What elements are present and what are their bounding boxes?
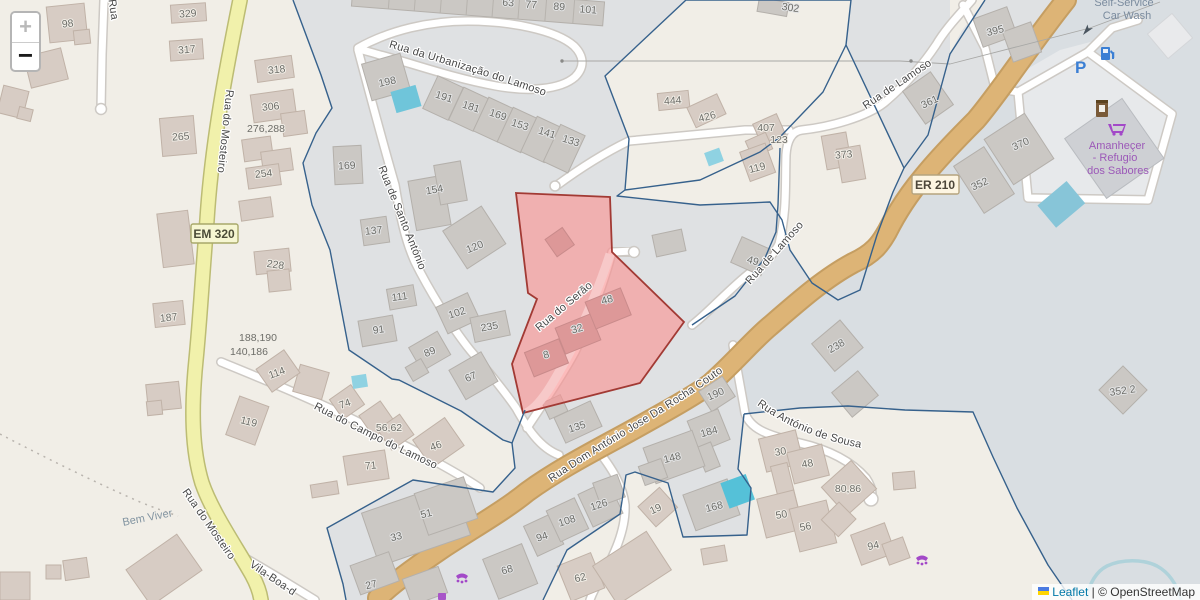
svg-text:228: 228 <box>266 258 285 272</box>
svg-text:169: 169 <box>338 160 356 173</box>
svg-text:317: 317 <box>178 43 196 56</box>
svg-text:318: 318 <box>267 63 286 77</box>
svg-text:140,186: 140,186 <box>230 346 268 358</box>
svg-text:123: 123 <box>770 134 788 146</box>
svg-text:ER 210: ER 210 <box>915 178 955 192</box>
svg-text:56,62: 56,62 <box>376 422 402 434</box>
svg-text:dos Sabores: dos Sabores <box>1087 165 1149 177</box>
svg-text:101: 101 <box>579 3 597 16</box>
svg-text:91: 91 <box>372 323 385 337</box>
svg-text:Car Wash: Car Wash <box>1103 10 1152 22</box>
svg-text:30: 30 <box>774 445 788 459</box>
svg-text:444: 444 <box>664 94 682 107</box>
svg-text:302: 302 <box>781 1 800 15</box>
svg-text:407: 407 <box>757 122 775 134</box>
svg-text:89: 89 <box>553 1 566 14</box>
svg-text:111: 111 <box>391 290 409 304</box>
svg-text:137: 137 <box>364 224 383 238</box>
svg-text:306: 306 <box>261 100 280 114</box>
svg-text:56: 56 <box>799 520 813 534</box>
svg-text:63: 63 <box>502 0 515 9</box>
svg-text:P: P <box>1075 58 1086 77</box>
svg-text:77: 77 <box>525 0 538 11</box>
svg-text:276,288: 276,288 <box>247 123 285 135</box>
svg-text:188,190: 188,190 <box>239 332 277 344</box>
svg-text:Self-Service: Self-Service <box>1094 0 1153 9</box>
svg-text:71: 71 <box>364 459 377 472</box>
svg-text:254: 254 <box>254 167 273 181</box>
svg-text:48: 48 <box>801 457 815 471</box>
svg-text:EM 320: EM 320 <box>193 227 235 241</box>
svg-text:- Refugio: - Refugio <box>1093 152 1138 164</box>
svg-text:187: 187 <box>159 311 178 325</box>
svg-text:50: 50 <box>775 508 789 522</box>
svg-text:Amanheçer: Amanheçer <box>1089 140 1146 152</box>
svg-text:373: 373 <box>834 148 853 161</box>
svg-text:80,86: 80,86 <box>835 483 861 495</box>
svg-text:329: 329 <box>179 7 197 20</box>
svg-text:98: 98 <box>61 17 74 30</box>
svg-text:l: l <box>1113 51 1115 60</box>
svg-text:265: 265 <box>172 130 190 143</box>
